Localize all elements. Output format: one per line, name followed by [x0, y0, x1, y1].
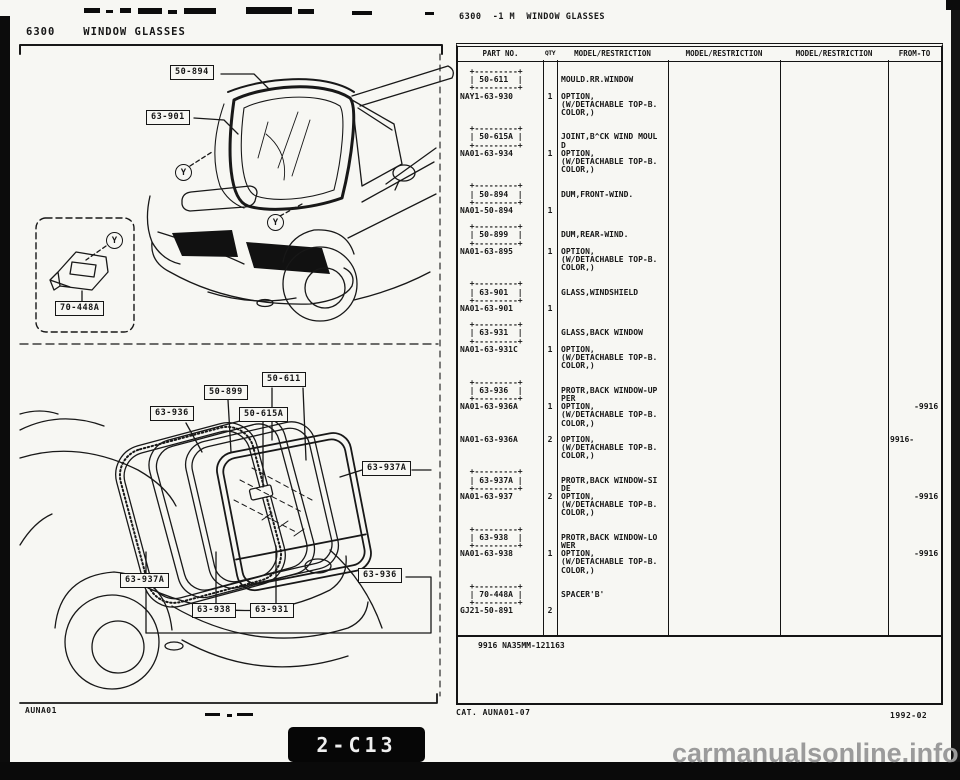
model-cell-2 — [668, 182, 780, 215]
scan-artifact — [352, 11, 372, 15]
catalog-page-scan: 6300 WINDOW GLASSES 50-894 63-901 70-448… — [0, 0, 960, 780]
fromto-cell — [888, 182, 941, 215]
rear-wheel — [65, 595, 159, 689]
fromto-cell: -9916 — [888, 468, 941, 517]
leader-50-899 — [228, 400, 231, 452]
model-cell-3 — [780, 379, 888, 428]
col-header-model-1: MODEL/RESTRICTION — [557, 47, 668, 61]
scan-artifact — [106, 10, 113, 13]
qty-cell: 1 — [543, 526, 557, 575]
table-row: +---------+ | 63-937A | +---------+ NA01… — [458, 468, 941, 517]
part-cell: +---------+ | 63-901 | +---------+ NA01-… — [458, 280, 543, 313]
model-cell-3 — [780, 68, 888, 117]
scan-artifact — [168, 10, 177, 14]
model-cell-2 — [668, 436, 780, 461]
part-label-50-611: 50-611 — [262, 372, 306, 387]
qty-cell: 1 — [543, 68, 557, 117]
desc-cell: DUM,REAR-WIND. OPTION, (W/DETACHABLE TOP… — [557, 223, 668, 272]
scan-artifact — [138, 8, 162, 14]
part-label-63-936-right: 63-936 — [358, 568, 402, 583]
part-label-50-615A: 50-615A — [239, 407, 288, 422]
joint-piece — [249, 485, 273, 501]
model-cell-3 — [780, 223, 888, 272]
scan-edge-right — [951, 0, 960, 780]
col-header-from-to: FROM-TO — [888, 47, 941, 61]
fromto-cell — [888, 583, 941, 616]
windshield-glass-outline — [241, 97, 343, 199]
desc-cell: OPTION, (W/DETACHABLE TOP-B. COLOR,) — [557, 436, 668, 461]
model-cell-2 — [668, 468, 780, 517]
model-cell-2 — [668, 583, 780, 616]
model-cell-3 — [780, 280, 888, 313]
scan-artifact — [237, 713, 253, 716]
qty-cell: 1 — [543, 280, 557, 313]
part-label-63-937A-right: 63-937A — [362, 461, 411, 476]
model-cell-3 — [780, 125, 888, 174]
part-cell: +---------+ | 70-448A | +---------+ GJ21… — [458, 583, 543, 616]
scan-artifact — [227, 714, 232, 717]
right-page-header: 6300 -1 M WINDOW GLASSES — [459, 12, 605, 22]
desc-cell: GLASS,WINDSHIELD — [557, 280, 668, 313]
table-row: +---------+ | 50-611 | +---------+ NAY1-… — [458, 68, 941, 117]
model-cell-3 — [780, 526, 888, 575]
issue-date: 1992-02 — [890, 711, 927, 720]
left-page-footer-code: AUNA01 — [25, 706, 57, 715]
glass-symbol-2: Y — [267, 214, 284, 231]
part-label-63-901: 63-901 — [146, 110, 190, 125]
fromto-cell — [888, 68, 941, 117]
fromto-cell — [888, 280, 941, 313]
table-row: +---------+ | 63-936 | +---------+ NA01-… — [458, 379, 941, 428]
glass-symbol-1: Y — [175, 164, 192, 181]
part-label-50-899: 50-899 — [204, 385, 248, 400]
qty-cell: 1 — [543, 125, 557, 174]
table-row: +---------+ | 63-938 | +---------+ NA01-… — [458, 526, 941, 575]
scan-artifact — [425, 12, 434, 15]
fromto-cell: 9916- — [888, 436, 941, 461]
seal-frame-moulding — [181, 417, 343, 593]
fromto-cell — [888, 223, 941, 272]
part-cell: +---------+ | 50-615A | +---------+ NA01… — [458, 125, 543, 174]
col-header-model-2: MODEL/RESTRICTION — [668, 47, 780, 61]
desc-cell: MOULD.RR.WINDOW OPTION, (W/DETACHABLE TO… — [557, 68, 668, 117]
part-cell: +---------+ | 63-937A | +---------+ NA01… — [458, 468, 543, 517]
model-cell-3 — [780, 468, 888, 517]
qty-cell: 1 — [543, 223, 557, 272]
part-cell: +---------+ | 63-938 | +---------+ NA01-… — [458, 526, 543, 575]
part-cell: +---------+ | 63-936 | +---------+ NA01-… — [458, 379, 543, 428]
model-cell-2 — [668, 68, 780, 117]
table-row: +---------+ | 63-901 | +---------+ NA01-… — [458, 280, 941, 313]
part-label-63-936-top: 63-936 — [150, 406, 194, 421]
scan-artifact — [84, 8, 100, 13]
windshield-frame — [230, 87, 354, 209]
scan-artifact — [298, 9, 314, 14]
desc-cell: GLASS,BACK WINDOW OPTION, (W/DETACHABLE … — [557, 321, 668, 370]
part-label-70-448A: 70-448A — [55, 301, 104, 316]
model-cell-2 — [668, 280, 780, 313]
desc-cell: PROTR,BACK WINDOW-UP PER OPTION, (W/DETA… — [557, 379, 668, 428]
col-header-model-3: MODEL/RESTRICTION — [780, 47, 888, 61]
left-page-bottom-border — [20, 694, 437, 703]
table-row: +---------+ | 70-448A | +---------+ GJ21… — [458, 583, 941, 616]
desc-cell: PROTR,BACK WINDOW-SI DE OPTION, (W/DETAC… — [557, 468, 668, 517]
scan-artifact — [120, 8, 131, 13]
table-row: +---------+ | 50-899 | +---------+ NA01-… — [458, 223, 941, 272]
leader-50-894 — [221, 74, 270, 90]
model-cell-2 — [668, 125, 780, 174]
qty-cell: 2 — [543, 436, 557, 461]
col-header-qty: QTY — [543, 47, 557, 61]
model-cell-3 — [780, 182, 888, 215]
table-row: +---------+ | 50-615A | +---------+ NA01… — [458, 125, 941, 174]
scan-artifact — [184, 8, 216, 14]
glass-symbol-3: Y — [106, 232, 123, 249]
part-label-63-938: 63-938 — [192, 603, 236, 618]
fromto-cell — [888, 125, 941, 174]
model-cell-2 — [668, 379, 780, 428]
desc-cell: PROTR,BACK WINDOW-LO WER OPTION, (W/DETA… — [557, 526, 668, 575]
table-row: +---------+ | 50-894 | +---------+ NA01-… — [458, 182, 941, 215]
part-cell: +---------+ | 50-899 | +---------+ NA01-… — [458, 223, 543, 272]
desc-cell: SPACER'B' — [557, 583, 668, 616]
scan-artifact — [946, 0, 960, 10]
part-label-63-937A-left: 63-937A — [120, 573, 169, 588]
model-cell-2 — [668, 223, 780, 272]
model-cell-3 — [780, 321, 888, 370]
qty-cell: 1 — [543, 321, 557, 370]
section-code: 6300 — [26, 26, 55, 38]
fromto-cell — [888, 321, 941, 370]
fromto-cell: -9916 — [888, 379, 941, 428]
scan-artifact — [246, 7, 292, 14]
model-cell-3 — [780, 436, 888, 461]
part-cell: +---------+ | 50-894 | +---------+ NA01-… — [458, 182, 543, 215]
parts-table-header-row: PART NO. QTY MODEL/RESTRICTION MODEL/RES… — [458, 47, 941, 62]
model-cell-3 — [780, 583, 888, 616]
watermark-text: carmanualsonline.info — [672, 738, 959, 769]
part-cell: +---------+ | 63-931 | +---------+ NA01-… — [458, 321, 543, 370]
parts-table-body: +---------+ | 50-611 | +---------+ NAY1-… — [458, 62, 941, 624]
table-footer-divider — [458, 635, 941, 637]
scan-artifact — [205, 713, 220, 716]
part-label-50-894: 50-894 — [170, 65, 214, 80]
desc-cell: DUM,FRONT-WIND. — [557, 182, 668, 215]
part-cell: NA01-63-936A — [458, 436, 543, 461]
col-header-part-no: PART NO. — [458, 47, 543, 61]
model-cell-2 — [668, 321, 780, 370]
scan-edge-left — [0, 16, 10, 762]
part-cell: +---------+ | 50-611 | +---------+ NAY1-… — [458, 68, 543, 117]
fromto-cell: -9916 — [888, 526, 941, 575]
model-cell-2 — [668, 526, 780, 575]
left-page-top-border — [20, 45, 442, 54]
chassis-note: 9916 NA35MM-121163 — [478, 641, 565, 650]
qty-cell: 1 — [543, 182, 557, 215]
qty-cell: 2 — [543, 468, 557, 517]
parts-table: PART NO. QTY MODEL/RESTRICTION MODEL/RES… — [456, 43, 943, 705]
qty-cell: 1 — [543, 379, 557, 428]
table-row: +---------+ | 63-931 | +---------+ NA01-… — [458, 321, 941, 370]
part-label-63-931: 63-931 — [250, 603, 294, 618]
spacer-part-drawing — [50, 252, 108, 290]
left-page-header: 6300 WINDOW GLASSES — [26, 26, 186, 38]
catalog-ref: CAT. AUNA01-07 — [456, 708, 530, 717]
desc-cell: JOINT,B^CK WIND MOUL D OPTION, (W/DETACH… — [557, 125, 668, 174]
fiche-page-ref-badge: 2-C13 — [288, 727, 425, 762]
qty-cell: 2 — [543, 583, 557, 616]
section-title: WINDOW GLASSES — [83, 26, 186, 38]
table-row: NA01-63-936A 2 OPTION, (W/DETACHABLE TOP… — [458, 436, 941, 461]
